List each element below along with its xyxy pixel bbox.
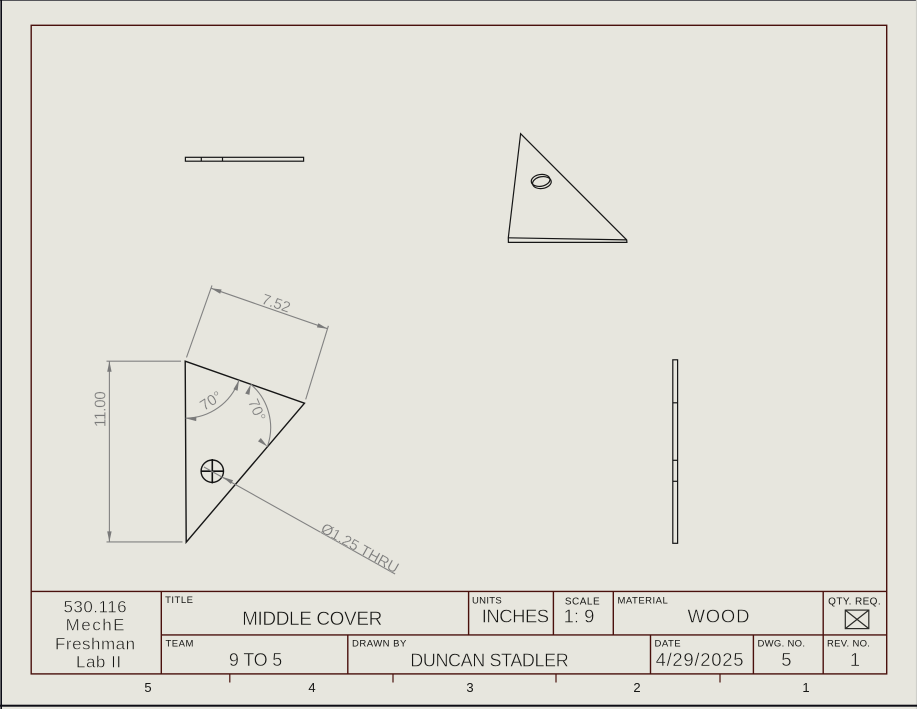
svg-text:INCHES: INCHES bbox=[482, 605, 549, 626]
svg-text:3: 3 bbox=[466, 680, 473, 695]
svg-text:1: 1 bbox=[802, 680, 809, 695]
svg-text:5: 5 bbox=[144, 680, 151, 695]
svg-text:DUNCAN STADLER: DUNCAN STADLER bbox=[410, 650, 568, 670]
svg-text:WOOD: WOOD bbox=[687, 605, 750, 626]
svg-text:4/29/2025: 4/29/2025 bbox=[656, 649, 745, 670]
svg-text:9 TO 5: 9 TO 5 bbox=[229, 650, 282, 670]
svg-text:2: 2 bbox=[633, 680, 640, 695]
svg-text:Freshman: Freshman bbox=[55, 634, 136, 653]
svg-text:11.00: 11.00 bbox=[92, 391, 109, 427]
svg-text:DWG. NO.: DWG. NO. bbox=[758, 639, 806, 650]
svg-text:QTY. REQ.: QTY. REQ. bbox=[828, 596, 881, 607]
svg-text:Lab II: Lab II bbox=[76, 653, 122, 672]
svg-text:DRAWN BY: DRAWN BY bbox=[352, 639, 407, 650]
svg-text:MechE: MechE bbox=[66, 616, 126, 635]
svg-text:DATE: DATE bbox=[655, 639, 682, 650]
svg-text:REV. NO.: REV. NO. bbox=[827, 639, 870, 650]
svg-text:5: 5 bbox=[781, 649, 791, 670]
svg-text:TEAM: TEAM bbox=[166, 639, 194, 650]
svg-text:MATERIAL: MATERIAL bbox=[618, 596, 669, 607]
svg-text:1: 1 bbox=[850, 649, 860, 670]
svg-text:530.116: 530.116 bbox=[63, 597, 127, 616]
svg-text:4: 4 bbox=[308, 680, 315, 695]
svg-text:TITLE: TITLE bbox=[165, 595, 193, 606]
svg-text:1: 9: 1: 9 bbox=[564, 605, 595, 626]
svg-text:MIDDLE COVER: MIDDLE COVER bbox=[242, 609, 382, 630]
